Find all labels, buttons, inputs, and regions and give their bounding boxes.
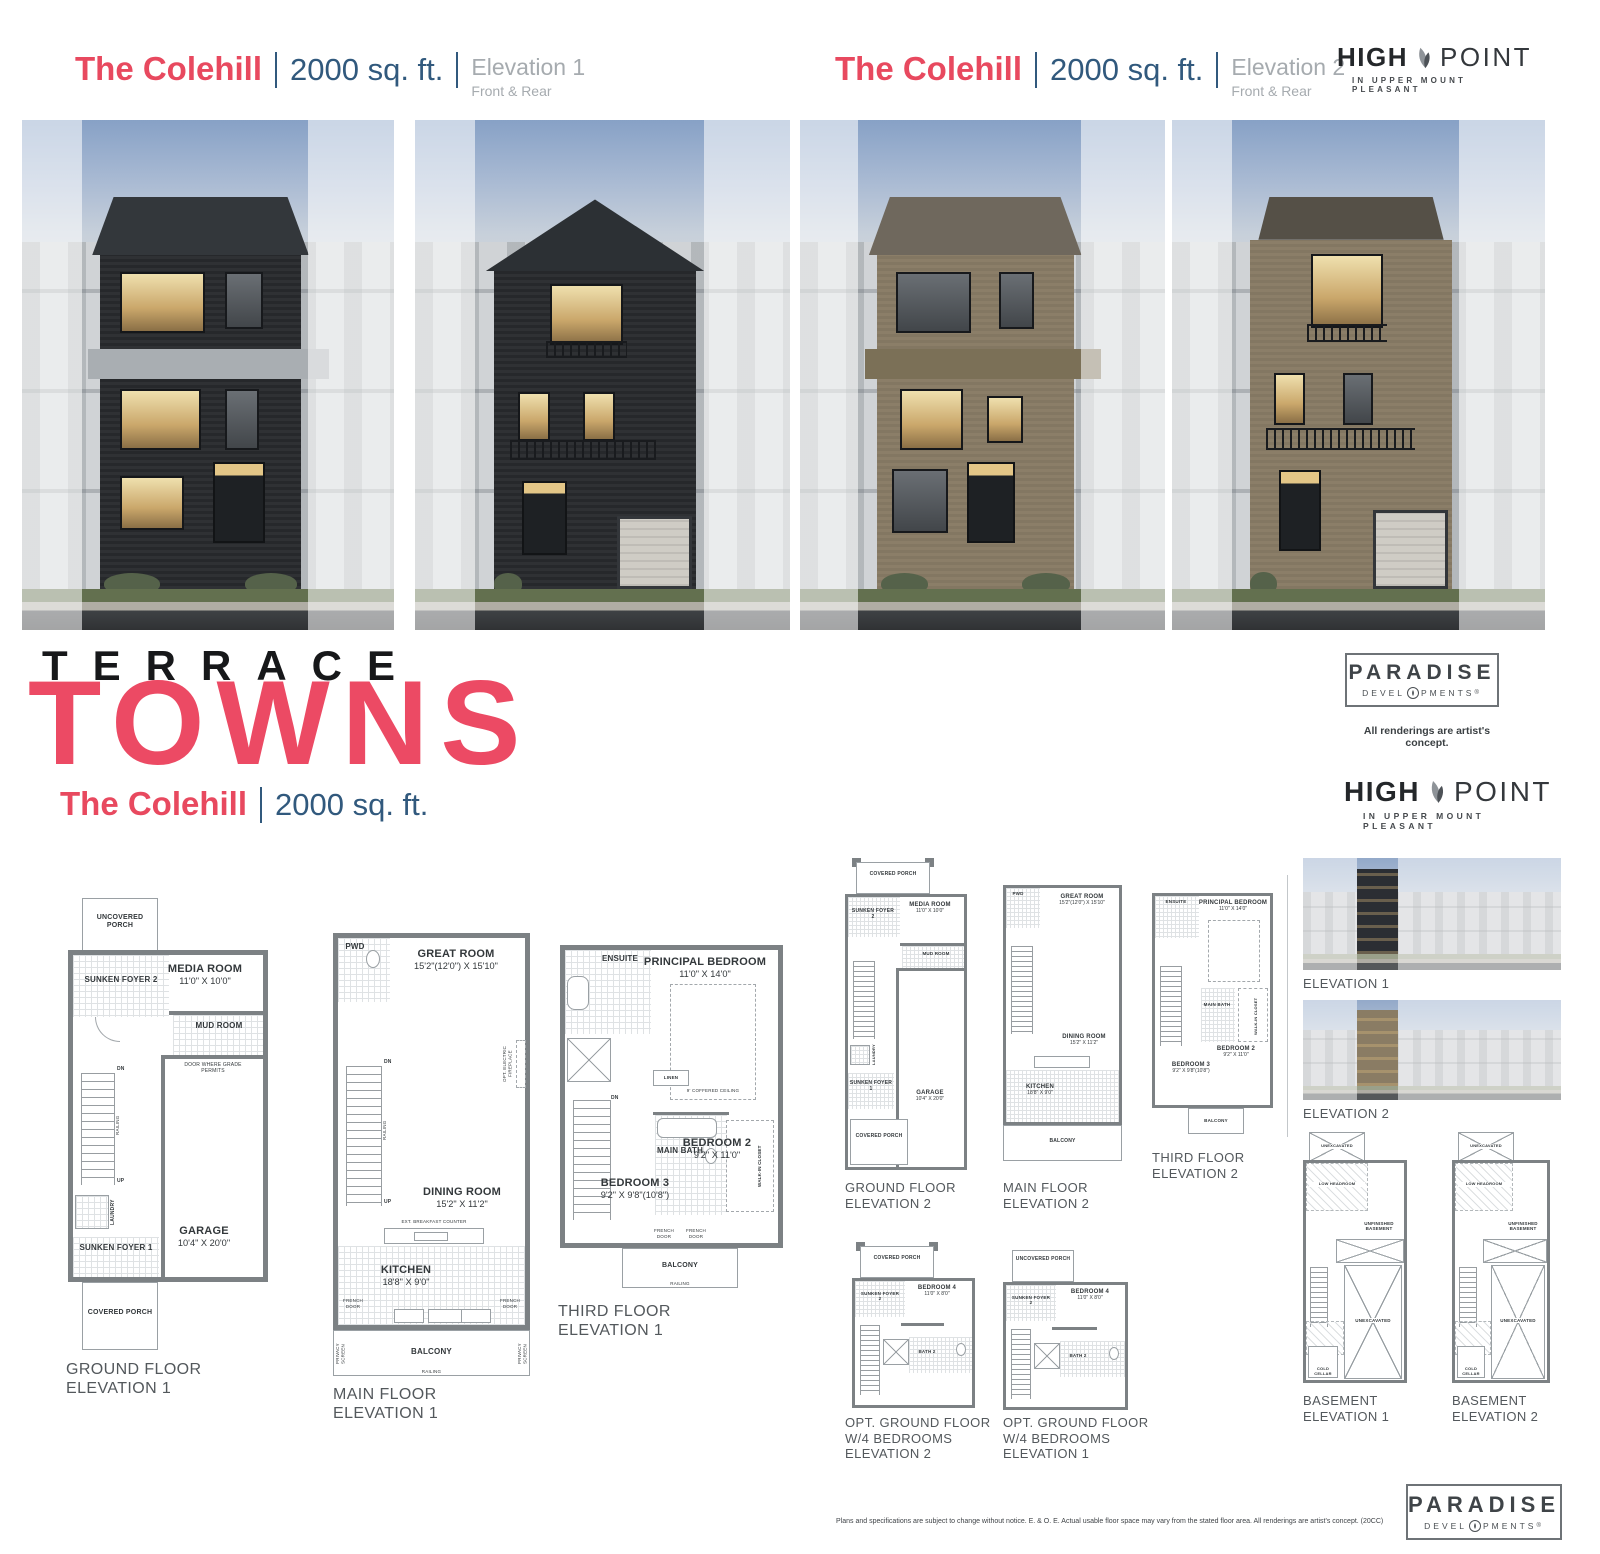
fade-overlay xyxy=(1303,1000,1357,1100)
unexcavated-box: UNEXCAVATED xyxy=(1309,1132,1365,1162)
fade-overlay xyxy=(1398,1000,1561,1100)
paradise-dev-left: DEVEL xyxy=(1424,1521,1467,1531)
room-label-bed3: BEDROOM 3 9'2" x 9'8"(10'8") xyxy=(579,1177,691,1201)
plan-caption-bsmt-e1: BASEMENT ELEVATION 1 xyxy=(1303,1393,1389,1424)
note-railing: RAILING xyxy=(115,1105,120,1145)
stairs xyxy=(1160,966,1182,1046)
model-size: 2000 sq. ft. xyxy=(275,785,428,823)
highpoint-high: HIGH xyxy=(1337,42,1408,73)
area-label-unexcavated: UNEXCAVATED xyxy=(1492,1318,1544,1323)
fade-overlay xyxy=(1172,120,1232,630)
room-dims: 15'2"(12'0") x 15'10" xyxy=(389,961,523,972)
note-french-door: FRENCH DOOR xyxy=(683,1228,709,1239)
low-headroom-strip xyxy=(1336,1239,1404,1263)
registered-mark: ® xyxy=(1536,1523,1543,1529)
room-label-principal: PRINCIPAL BEDROOM 11'0" x 14'0" xyxy=(634,956,776,980)
room-label-kitchen: KITCHEN 18'8" x 9'0" xyxy=(1012,1084,1068,1097)
stairs xyxy=(346,1066,382,1206)
fade-overlay xyxy=(1398,858,1561,970)
bed-outline xyxy=(1208,920,1260,982)
facade xyxy=(494,271,697,589)
highpoint-point: POINT xyxy=(1454,776,1552,808)
porch-outline: COVERED PORCH xyxy=(856,862,930,894)
model-name: The Colehill xyxy=(835,50,1022,88)
note-coffered: 9' COFFERED CEILING xyxy=(672,1088,754,1093)
room-name: BEDROOM 2 xyxy=(683,1137,751,1149)
caption-line: W/4 BEDROOMS xyxy=(1003,1431,1148,1447)
divider xyxy=(260,787,262,823)
room-label-kitchen: KITCHEN 18'8" x 9'0" xyxy=(360,1264,452,1288)
thumb-label-e1: ELEVATION 1 xyxy=(1303,976,1389,992)
toilet-fixture xyxy=(366,950,380,968)
highpoint-logo: HIGH POINT IN UPPER MOUNT PLEASANT xyxy=(1352,42,1517,94)
room-label-foyer2: SUNKEN FOYER 2 xyxy=(859,1291,901,1302)
balcony-railing xyxy=(1266,428,1415,449)
area-label-unexcavated: UNEXCAVATED xyxy=(1459,1144,1513,1149)
floorplan-ground-elevation1: SUNKEN FOYER 2 MEDIA ROOM 11'0" x 10'0" … xyxy=(68,950,268,1282)
area-label-low: LOW HEADROOM xyxy=(1309,1182,1365,1187)
caption-line: ELEVATION 2 xyxy=(1452,1409,1538,1425)
fade-overlay xyxy=(1303,858,1357,970)
caption-line: W/4 BEDROOMS xyxy=(845,1431,990,1447)
view-label: Front & Rear xyxy=(471,83,585,99)
cold-cellar: COLD CELLAR xyxy=(1457,1346,1485,1378)
appliance xyxy=(428,1309,462,1323)
plan-caption-mf-e1: MAIN FLOOR ELEVATION 1 xyxy=(333,1385,438,1423)
brochure-page: The Colehill 2000 sq. ft. Elevation 1 Fr… xyxy=(0,0,1600,1554)
room-name: BEDROOM 3 xyxy=(601,1177,669,1189)
room-name: PRINCIPAL BEDROOM xyxy=(644,956,766,968)
porch-outline: UNCOVERED PORCH xyxy=(82,898,158,952)
header-elevation2: The Colehill 2000 sq. ft. Elevation 2 Fr… xyxy=(835,50,1345,99)
caption-line: ELEVATION 1 xyxy=(66,1379,201,1398)
paradise-dev-right: PMENTS xyxy=(1421,688,1474,698)
caption-line: ELEVATION 2 xyxy=(1003,1196,1089,1212)
leaf-circle-icon xyxy=(1469,1520,1481,1532)
area-label-cold: COLD CELLAR xyxy=(1458,1367,1484,1376)
room-dims: 9'2" x 9'8"(10'8") xyxy=(1159,1069,1223,1075)
room-label-pwd: PWD xyxy=(1008,891,1028,896)
leaf-icon xyxy=(1411,45,1437,71)
rendering-elevation1-rear xyxy=(415,120,790,630)
note-fireplace: OPT. ELECTRIC FIREPLACE xyxy=(502,1036,513,1092)
roof xyxy=(92,197,309,256)
room-label-mud: MUD ROOM xyxy=(910,951,962,956)
room-label-porch: UNCOVERED PORCH xyxy=(83,914,157,931)
roof xyxy=(869,197,1082,256)
room-label-balcony: BALCONY xyxy=(623,1262,737,1270)
wall xyxy=(1052,1327,1097,1330)
room-label-garage: GARAGE 10'4" x 20'0" xyxy=(151,1225,257,1249)
hero-title: TOWNS xyxy=(28,666,532,780)
caption-line: THIRD FLOOR xyxy=(558,1302,671,1321)
model-size: 2000 sq. ft. xyxy=(1050,50,1203,88)
note-up: UP xyxy=(117,1179,124,1185)
room-label-porch: COVERED PORCH xyxy=(83,1309,157,1317)
appliance xyxy=(461,1309,491,1323)
room-dims: 10'4" x 20'0" xyxy=(900,1097,960,1103)
caption-line: ELEVATION 1 xyxy=(558,1321,671,1340)
door-arc xyxy=(95,1017,120,1042)
floorplan-ground-elevation2: SUNKEN FOYER 2 MEDIA ROOM 11'0" x 10'0" … xyxy=(845,894,967,1170)
plan-caption-gf-e2: GROUND FLOOR ELEVATION 2 xyxy=(845,1180,956,1211)
paradise-dev-left: DEVEL xyxy=(1362,688,1405,698)
canopy-band xyxy=(88,349,329,379)
garage-door xyxy=(1373,510,1447,589)
toilet-fixture xyxy=(956,1343,966,1356)
caption-line: ELEVATION 1 xyxy=(1303,1409,1389,1425)
floor-hatch xyxy=(902,946,964,968)
note-door-grade: DOOR WHERE GRADE PERMITS xyxy=(181,1063,245,1075)
highpoint-tagline: IN UPPER MOUNT PLEASANT xyxy=(1363,811,1533,831)
room-dims: 18'8" x 9'0" xyxy=(1012,1091,1068,1097)
plan-caption-opt-e2: OPT. GROUND FLOOR W/4 BEDROOMS ELEVATION… xyxy=(845,1415,990,1462)
balcony-railing xyxy=(510,440,656,460)
plan-caption-tf-e1: THIRD FLOOR ELEVATION 1 xyxy=(558,1302,671,1340)
caption-line: ELEVATION 2 xyxy=(1152,1166,1245,1182)
room-label-dining: DINING ROOM 15'2" x 11'2" xyxy=(1051,1034,1117,1047)
laundry-closet xyxy=(850,1045,870,1065)
room-label-media: MEDIA ROOM 11'0" x 10'0" xyxy=(149,963,261,987)
fade-overlay xyxy=(22,120,82,630)
room-label-principal: PRINCIPAL BEDROOM 11'0" x 14'0" xyxy=(1196,900,1270,913)
room-label-laundry: LAUNDRY xyxy=(872,1043,877,1067)
view-label: Front & Rear xyxy=(1231,83,1345,99)
area-label-low: LOW HEADROOM xyxy=(1458,1182,1510,1187)
plan-caption-bsmt-e2: BASEMENT ELEVATION 2 xyxy=(1452,1393,1538,1424)
wall xyxy=(901,1323,944,1326)
note-dn: DN xyxy=(117,1067,125,1073)
room-label-porch: COVERED PORCH xyxy=(857,872,929,878)
divider xyxy=(1035,52,1037,88)
front-door xyxy=(967,462,1014,543)
siding-band xyxy=(865,349,1101,379)
plan-caption-gf-e1: GROUND FLOOR ELEVATION 1 xyxy=(66,1360,201,1398)
room-label-great: GREAT ROOM 15'2"(12'0") x 15'10" xyxy=(389,948,523,972)
caption-line: GROUND FLOOR xyxy=(845,1180,956,1196)
area-label-cold: COLD CELLAR xyxy=(1309,1367,1337,1376)
note-counter: EXT. BREAKFAST COUNTER xyxy=(384,1219,484,1224)
rendering-elevation2-rear xyxy=(1172,120,1545,630)
window xyxy=(1343,373,1373,426)
room-name: GREAT ROOM xyxy=(418,948,495,960)
plan-caption-opt-e1: OPT. GROUND FLOOR W/4 BEDROOMS ELEVATION… xyxy=(1003,1415,1148,1462)
rear-door xyxy=(522,481,567,555)
note-up: UP xyxy=(384,1200,391,1206)
room-label-garage: GARAGE 10'4" x 20'0" xyxy=(900,1090,960,1103)
room-label-foyer1: SUNKEN FOYER 1 xyxy=(848,1081,894,1093)
window xyxy=(987,396,1023,443)
area-label-unexcavated: UNEXCAVATED xyxy=(1345,1318,1401,1323)
appliance xyxy=(394,1309,424,1323)
cold-cellar: COLD CELLAR xyxy=(1308,1346,1338,1378)
room-label-balcony: BALCONY xyxy=(1004,1139,1121,1145)
caption-line: BASEMENT xyxy=(1303,1393,1389,1409)
note-privacy: PRIVACY SCREEN xyxy=(517,1335,528,1373)
divider xyxy=(275,52,277,88)
room-label-bed2: BEDROOM 2 9'2" x 11'0" xyxy=(1204,1046,1268,1059)
shower-fixture xyxy=(567,1038,611,1082)
island-fixture xyxy=(414,1232,448,1241)
room-dims: 11'0" x 10'0" xyxy=(149,976,261,987)
room-label-bed4: BEDROOM 4 11'0" x 8'0" xyxy=(904,1285,970,1298)
header-elevation1: The Colehill 2000 sq. ft. Elevation 1 Fr… xyxy=(75,50,585,99)
room-dims: 10'4" x 20'0" xyxy=(151,1238,257,1249)
low-headroom-area: LOW HEADROOM xyxy=(1306,1163,1368,1211)
footer-disclaimer: Plans and specifications are subject to … xyxy=(836,1518,1383,1525)
porch-outline: UNCOVERED PORCH xyxy=(1012,1250,1074,1282)
wall xyxy=(896,968,964,971)
paradise-dev-right: PMENTS xyxy=(1483,1521,1536,1531)
plan-caption-tf-e2: THIRD FLOOR ELEVATION 2 xyxy=(1152,1150,1245,1181)
room-label-porch: UNCOVERED PORCH xyxy=(1013,1257,1073,1263)
highlighted-unit xyxy=(1357,869,1398,954)
floorplan-third-elevation2: ENSUITE PRINCIPAL BEDROOM 11'0" x 14'0" … xyxy=(1152,893,1273,1108)
room-label-media: MEDIA ROOM 11'0" x 10'0" xyxy=(898,902,962,915)
area-label-unfinished: UNFINISHED BASEMENT xyxy=(1499,1221,1547,1232)
floorplan-opt-ground-elevation1: SUNKEN FOYER 2 BEDROOM 4 11'0" x 8'0" BA… xyxy=(1003,1282,1128,1410)
tub-fixture xyxy=(567,976,589,1010)
room-label-bed3: BEDROOM 3 9'2" x 9'8"(10'8") xyxy=(1159,1062,1223,1075)
artists-concept-note: All renderings are artist's concept. xyxy=(1352,725,1502,749)
room-name: MEDIA ROOM xyxy=(168,963,242,975)
juliet-railing xyxy=(1307,324,1388,342)
unexcavated-box: UNEXCAVATED xyxy=(1458,1132,1514,1162)
window xyxy=(518,392,550,441)
facade xyxy=(1250,240,1451,590)
floorplan-main-elevation1: PWD GREAT ROOM 15'2"(12'0") x 15'10" OPT… xyxy=(333,933,530,1330)
balcony-outline: BALCONY RAILING xyxy=(622,1248,738,1288)
leaf-icon xyxy=(1423,778,1451,806)
note-french-door: FRENCH DOOR xyxy=(497,1298,523,1309)
caption-line: GROUND FLOOR xyxy=(66,1360,201,1379)
tub-fixture xyxy=(657,1118,717,1138)
low-headroom-area: LOW HEADROOM xyxy=(1455,1163,1513,1211)
room-label-foyer1: SUNKEN FOYER 1 xyxy=(75,1243,157,1252)
highlighted-unit xyxy=(1357,1010,1398,1086)
room-label-dining: DINING ROOM 15'2" x 11'2" xyxy=(401,1186,523,1210)
room-label-foyer2: SUNKEN FOYER 2 xyxy=(1010,1295,1052,1306)
fade-overlay xyxy=(800,120,858,630)
room-label-porch: COVERED PORCH xyxy=(851,1134,907,1140)
room-name: DINING ROOM xyxy=(423,1186,501,1198)
window xyxy=(1311,254,1383,328)
featured-unit xyxy=(494,197,697,590)
floorplan-main-elevation2: PWD GREAT ROOM 15'2"(12'0") x 15'10" DIN… xyxy=(1003,885,1122,1125)
featured-unit xyxy=(877,197,1074,590)
model-size: 2000 sq. ft. xyxy=(290,50,443,88)
window xyxy=(120,476,184,530)
balcony-outline: BALCONY xyxy=(1188,1108,1244,1134)
closet-outline xyxy=(726,1120,774,1212)
room-dims: 11'0" x 14'0" xyxy=(634,969,776,980)
room-dims: 9'2" x 11'0" xyxy=(1204,1053,1268,1059)
breakfast-counter xyxy=(1034,1056,1090,1068)
window xyxy=(550,284,623,345)
wall xyxy=(161,1055,263,1059)
room-dims: 9'2" x 9'8"(10'8") xyxy=(579,1190,691,1201)
facade xyxy=(100,255,301,589)
balcony-outline: BALCONY RAILING PRIVACY SCREEN PRIVACY S… xyxy=(333,1330,530,1376)
paradise-logo-footer: PARADISE DEVEL PMENTS ® xyxy=(1406,1484,1562,1540)
stairs xyxy=(1459,1267,1477,1327)
highpoint-point: POINT xyxy=(1440,42,1532,73)
window xyxy=(120,389,200,450)
fade-overlay xyxy=(1459,120,1545,630)
room-name: KITCHEN xyxy=(381,1264,431,1276)
divider-line xyxy=(1287,875,1288,1137)
room-name: GARAGE xyxy=(179,1225,228,1237)
window xyxy=(999,272,1035,329)
toilet-fixture xyxy=(1109,1347,1119,1360)
room-label-great: GREAT ROOM 15'2"(12'0") x 15'10" xyxy=(1047,894,1117,907)
room-label-laundry: LAUNDRY xyxy=(111,1195,117,1229)
model-name: The Colehill xyxy=(75,50,262,88)
stairs xyxy=(1011,946,1033,1034)
rear-door xyxy=(1279,470,1321,551)
floor-hatch xyxy=(1201,988,1235,1042)
caption-line: ELEVATION 2 xyxy=(845,1196,956,1212)
plan-caption-mf-e2: MAIN FLOOR ELEVATION 2 xyxy=(1003,1180,1089,1211)
room-dims: 15'2"(12'0") x 15'10" xyxy=(1047,901,1117,907)
label-line: BASEMENT xyxy=(1354,1226,1404,1231)
caption-line: ELEVATION 2 xyxy=(845,1446,990,1462)
caption-line: OPT. GROUND FLOOR xyxy=(845,1415,990,1431)
closet-fixture xyxy=(1034,1343,1060,1369)
room-label-bed2: BEDROOM 2 9'2" x 11'0" xyxy=(664,1137,770,1161)
porch-outline: COVERED PORCH xyxy=(850,1119,908,1165)
window xyxy=(1274,373,1304,426)
fade-overlay xyxy=(704,120,790,630)
streetscape-thumb-elevation1 xyxy=(1303,858,1561,970)
note-railing: RAILING xyxy=(382,1108,387,1152)
featured-unit xyxy=(100,197,301,590)
room-label-bath2: BATH 2 xyxy=(913,1349,941,1354)
note-french-door: FRENCH DOOR xyxy=(340,1298,366,1309)
stairs xyxy=(573,1100,611,1220)
floorplan-basement-elevation1: LOW HEADROOM UNFINISHED BASEMENT UNEXCAV… xyxy=(1303,1160,1407,1383)
room-label-bath: MAIN BATH xyxy=(1201,1002,1233,1007)
fade-overlay xyxy=(1081,120,1165,630)
caption-line: BASEMENT xyxy=(1452,1393,1538,1409)
window xyxy=(892,469,947,533)
roof xyxy=(486,197,705,272)
label-line: UNFINISHED xyxy=(1508,1221,1538,1226)
caption-line: ELEVATION 1 xyxy=(1003,1446,1148,1462)
room-label-linen: LINEN xyxy=(653,1075,689,1080)
facade xyxy=(877,255,1074,589)
label-line: BASEMENT xyxy=(1499,1226,1547,1231)
window xyxy=(896,272,971,333)
area-label-unfinished: UNFINISHED BASEMENT xyxy=(1354,1221,1404,1232)
fade-overlay xyxy=(308,120,394,630)
window xyxy=(225,272,263,329)
unexcavated-box: UNEXCAVATED xyxy=(1344,1265,1402,1379)
model-name: The Colehill xyxy=(60,785,247,823)
floorplan-opt-ground-elevation2: SUNKEN FOYER 2 BEDROOM 4 11'0" x 8'0" BA… xyxy=(852,1278,975,1408)
caption-line: ELEVATION 1 xyxy=(333,1404,438,1423)
leaf-circle-icon xyxy=(1407,687,1419,699)
room-dims: 11'0" x 8'0" xyxy=(1057,1296,1123,1302)
floorplan-third-elevation1: ENSUITE PRINCIPAL BEDROOM 11'0" x 14'0" … xyxy=(560,945,783,1248)
balcony-outline: BALCONY xyxy=(1003,1125,1122,1161)
window xyxy=(900,389,963,450)
rendering-elevation1-front xyxy=(22,120,394,630)
note-french-door: FRENCH DOOR xyxy=(651,1228,677,1239)
highpoint-logo-2: HIGH POINT IN UPPER MOUNT PLEASANT xyxy=(1363,776,1533,831)
area-label-unexcavated: UNEXCAVATED xyxy=(1310,1144,1364,1149)
registered-mark: ® xyxy=(1474,690,1481,696)
floorplan-basement-elevation2: LOW HEADROOM UNFINISHED BASEMENT UNEXCAV… xyxy=(1452,1160,1550,1383)
divider xyxy=(1216,52,1218,88)
room-label-ensuite: ENSUITE xyxy=(1159,899,1193,904)
caption-line: THIRD FLOOR xyxy=(1152,1150,1245,1166)
room-label-porch: COVERED PORCH xyxy=(861,1256,933,1262)
roof xyxy=(1258,197,1443,240)
caption-line: OPT. GROUND FLOOR xyxy=(1003,1415,1148,1431)
paradise-name: PARADISE xyxy=(1408,1492,1560,1518)
window xyxy=(120,272,204,333)
stairs xyxy=(860,1325,880,1395)
porch-outline: COVERED PORCH xyxy=(82,1282,158,1350)
note-dn: DN xyxy=(384,1060,392,1066)
room-label-bath2: BATH 2 xyxy=(1064,1353,1092,1358)
note-privacy: PRIVACY SCREEN xyxy=(335,1335,346,1373)
room-dims: 11'0" x 8'0" xyxy=(904,1292,970,1298)
caption-line: MAIN FLOOR xyxy=(333,1385,438,1404)
rendering-elevation2-front xyxy=(800,120,1165,630)
highpoint-tagline: IN UPPER MOUNT PLEASANT xyxy=(1352,76,1517,94)
room-label-mud: MUD ROOM xyxy=(181,1021,257,1030)
divider xyxy=(456,52,458,88)
elevation-label: Elevation 1 xyxy=(471,54,585,81)
fade-overlay xyxy=(415,120,475,630)
note-dn: DN xyxy=(611,1096,619,1102)
unexcavated-box: UNEXCAVATED xyxy=(1491,1265,1545,1379)
room-label-bed4: BEDROOM 4 11'0" x 8'0" xyxy=(1057,1289,1123,1302)
caption-line: MAIN FLOOR xyxy=(1003,1180,1089,1196)
note-railing: RAILING xyxy=(334,1369,529,1374)
juliet-railing xyxy=(546,341,627,358)
room-dims: 11'0" x 10'0" xyxy=(898,909,962,915)
window xyxy=(583,392,615,441)
featured-unit xyxy=(1250,197,1451,590)
room-dims: 11'0" x 14'0" xyxy=(1196,907,1270,913)
label-line: UNFINISHED xyxy=(1364,1221,1394,1226)
laundry-closet xyxy=(75,1195,109,1229)
paradise-logo: PARADISE DEVEL PMENTS ® xyxy=(1345,653,1499,707)
subtitle: The Colehill 2000 sq. ft. xyxy=(60,785,428,823)
elevation-label: Elevation 2 xyxy=(1231,54,1345,81)
room-dims: 18'8" x 9'0" xyxy=(360,1277,452,1288)
room-dims: 15'2" x 11'2" xyxy=(1051,1041,1117,1047)
stairs xyxy=(1011,1329,1031,1399)
stairs xyxy=(853,961,875,1039)
garage-door xyxy=(617,516,692,589)
room-label-balcony: BALCONY xyxy=(334,1347,529,1356)
room-dims: 9'2" x 11'0" xyxy=(664,1150,770,1161)
stairs xyxy=(1310,1267,1328,1327)
thumb-label-e2: ELEVATION 2 xyxy=(1303,1106,1389,1122)
low-headroom-strip xyxy=(1483,1239,1547,1263)
streetscape-thumb-elevation2 xyxy=(1303,1000,1561,1100)
window xyxy=(225,389,259,450)
closet-fixture xyxy=(883,1339,909,1365)
room-dims: 15'2" x 11'2" xyxy=(401,1199,523,1210)
stairs xyxy=(81,1073,115,1185)
room-label-foyer2: SUNKEN FOYER 2 xyxy=(850,909,896,921)
note-railing: RAILING xyxy=(623,1281,737,1286)
